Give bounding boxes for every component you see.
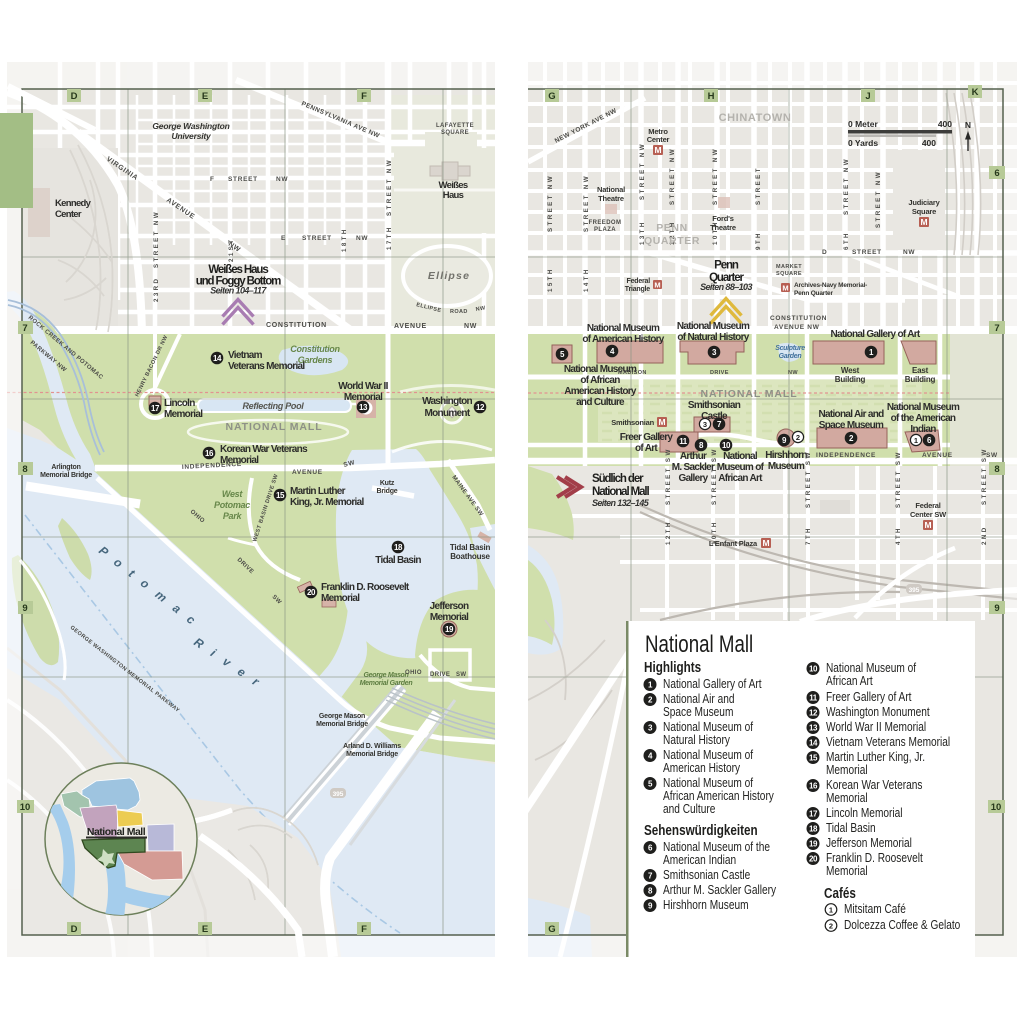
svg-text:Ellipse: Ellipse: [428, 270, 470, 282]
svg-text:Potomac: Potomac: [214, 500, 250, 510]
svg-text:World War II: World War II: [338, 381, 388, 392]
svg-text:George Mason: George Mason: [319, 713, 365, 720]
svg-text:18: 18: [394, 543, 403, 552]
svg-text:of Art: of Art: [635, 443, 658, 454]
svg-text:DRIVE: DRIVE: [430, 672, 450, 678]
svg-text:STREET NW: STREET NW: [386, 158, 393, 216]
svg-text:STREET SW: STREET SW: [981, 447, 988, 505]
svg-text:H: H: [708, 91, 715, 102]
svg-text:F: F: [361, 91, 367, 102]
svg-text:E: E: [281, 235, 286, 242]
svg-text:L'Enfant Plaza: L'Enfant Plaza: [709, 539, 758, 548]
svg-text:Memorial Bridge: Memorial Bridge: [40, 472, 92, 479]
svg-text:STREET: STREET: [228, 176, 258, 183]
svg-text:F: F: [361, 924, 367, 935]
svg-text:Bridge: Bridge: [377, 488, 398, 495]
svg-text:3: 3: [703, 420, 707, 429]
svg-text:National Gallery of Art: National Gallery of Art: [663, 677, 762, 691]
svg-text:12: 12: [476, 403, 485, 412]
svg-text:11: 11: [679, 437, 688, 446]
svg-text:400: 400: [938, 119, 952, 129]
svg-text:6TH: 6TH: [843, 231, 850, 250]
svg-text:National Mall: National Mall: [87, 826, 146, 838]
svg-text:of American History: of American History: [582, 334, 664, 345]
svg-text:Federal: Federal: [627, 278, 651, 285]
svg-text:Archives-Navy Memorial-: Archives-Navy Memorial-: [794, 282, 867, 289]
svg-text:CHINATOWN: CHINATOWN: [719, 112, 792, 124]
svg-text:Memorial: Memorial: [826, 763, 868, 777]
svg-text:East: East: [912, 366, 929, 375]
svg-text:INDEPENDENCE: INDEPENDENCE: [816, 452, 876, 459]
svg-text:7TH: 7TH: [805, 526, 812, 545]
svg-text:George Mason: George Mason: [363, 672, 408, 679]
svg-text:AVENUE NW: AVENUE NW: [774, 324, 820, 331]
svg-text:Monument: Monument: [425, 408, 471, 419]
svg-text:G: G: [548, 91, 555, 102]
svg-text:QUARTER: QUARTER: [644, 235, 700, 247]
svg-text:10: 10: [20, 802, 31, 813]
svg-text:17TH: 17TH: [386, 225, 393, 250]
svg-text:American Indian: American Indian: [663, 853, 736, 867]
svg-text:M: M: [924, 520, 931, 530]
svg-text:Sculpture: Sculpture: [775, 345, 805, 352]
svg-text:National Mall: National Mall: [645, 631, 753, 658]
svg-text:Seiten 104–117: Seiten 104–117: [210, 286, 267, 296]
svg-text:Theatre: Theatre: [710, 223, 736, 232]
svg-text:Center SW: Center SW: [910, 510, 947, 519]
svg-text:Südlich der: Südlich der: [592, 473, 644, 485]
svg-text:SQUARE: SQUARE: [776, 271, 802, 277]
svg-text:STREET SW: STREET SW: [711, 447, 718, 505]
svg-text:Penn: Penn: [714, 260, 739, 272]
svg-text:8: 8: [22, 464, 27, 475]
svg-text:8: 8: [994, 464, 999, 475]
svg-text:F: F: [210, 176, 215, 183]
svg-text:Park: Park: [223, 511, 243, 521]
svg-text:Hirshhorn Museum: Hirshhorn Museum: [663, 898, 749, 912]
svg-text:Ford's: Ford's: [712, 214, 733, 223]
svg-text:Dolcezza Coffee & Gelato: Dolcezza Coffee & Gelato: [844, 918, 960, 932]
svg-text:NW: NW: [788, 370, 798, 376]
svg-text:Kennedy: Kennedy: [55, 198, 92, 209]
svg-text:MARKET: MARKET: [776, 264, 802, 270]
svg-text:STREET NW: STREET NW: [639, 142, 646, 200]
svg-text:Korean War Veterans: Korean War Veterans: [220, 444, 308, 455]
svg-text:Weißes Haus: Weißes Haus: [208, 264, 268, 276]
svg-text:Mitsitam Café: Mitsitam Café: [844, 902, 906, 916]
svg-text:STREET SW: STREET SW: [665, 447, 672, 505]
svg-text:Hirshhorn: Hirshhorn: [765, 450, 807, 461]
svg-text:19: 19: [809, 840, 818, 849]
svg-text:STREET: STREET: [755, 166, 762, 205]
svg-text:18: 18: [809, 825, 818, 834]
svg-text:J: J: [865, 91, 870, 102]
svg-text:NATIONAL MALL: NATIONAL MALL: [700, 388, 797, 400]
svg-text:ROAD: ROAD: [450, 309, 468, 315]
svg-text:15: 15: [809, 754, 818, 763]
svg-text:Tidal Basin: Tidal Basin: [375, 555, 421, 566]
svg-text:AVENUE: AVENUE: [292, 469, 323, 476]
svg-text:Kutz: Kutz: [380, 480, 395, 487]
svg-text:National Museum: National Museum: [677, 321, 750, 332]
svg-text:17: 17: [809, 810, 818, 819]
svg-text:M: M: [920, 217, 927, 227]
svg-text:1: 1: [914, 436, 918, 445]
svg-text:Smithsonian Castle: Smithsonian Castle: [663, 868, 750, 882]
svg-text:10: 10: [722, 441, 731, 450]
svg-text:15: 15: [276, 491, 285, 500]
svg-text:STREET NW: STREET NW: [669, 147, 676, 205]
svg-text:Building: Building: [835, 375, 866, 384]
svg-text:STREET NW: STREET NW: [712, 147, 719, 205]
svg-text:Museum of: Museum of: [717, 462, 765, 473]
svg-text:George Washington: George Washington: [152, 121, 229, 131]
svg-text:395: 395: [333, 791, 344, 798]
svg-text:Constitution: Constitution: [290, 344, 340, 354]
svg-text:STREET NW: STREET NW: [153, 210, 160, 268]
svg-text:of African: of African: [580, 375, 620, 386]
svg-text:University: University: [171, 131, 212, 141]
svg-text:Arthur M. Sackler Gallery: Arthur M. Sackler Gallery: [663, 883, 776, 897]
svg-text:National Museum: National Museum: [587, 323, 660, 334]
svg-text:21ST: 21ST: [228, 238, 235, 262]
svg-text:Indian: Indian: [910, 424, 936, 435]
svg-text:400: 400: [922, 138, 936, 148]
svg-text:Memorial: Memorial: [826, 864, 868, 878]
svg-text:D: D: [71, 924, 78, 935]
svg-text:Lincoln: Lincoln: [164, 398, 195, 409]
svg-text:15TH: 15TH: [547, 267, 554, 292]
svg-text:D: D: [822, 249, 827, 256]
svg-text:Reflecting Pool: Reflecting Pool: [242, 401, 304, 411]
svg-text:Arthur: Arthur: [680, 451, 707, 462]
svg-text:National Museum: National Museum: [887, 402, 960, 413]
svg-text:7: 7: [22, 323, 27, 334]
svg-text:Museum: Museum: [768, 461, 805, 472]
svg-text:World War II Memorial: World War II Memorial: [826, 720, 926, 734]
svg-text:M: M: [782, 284, 788, 293]
svg-text:Space Museum: Space Museum: [663, 705, 733, 719]
svg-text:Seiten 132–145: Seiten 132–145: [592, 498, 650, 508]
svg-text:2: 2: [796, 433, 800, 442]
svg-text:D: D: [71, 91, 78, 102]
svg-text:14: 14: [213, 354, 222, 363]
svg-text:Memorial: Memorial: [826, 791, 868, 805]
svg-text:NATIONAL MALL: NATIONAL MALL: [225, 421, 322, 433]
svg-text:16: 16: [809, 782, 818, 791]
svg-text:NW: NW: [464, 323, 477, 330]
svg-text:Vietnam Veterans Memorial: Vietnam Veterans Memorial: [826, 735, 950, 749]
svg-text:Memorial Bridge: Memorial Bridge: [346, 751, 398, 758]
svg-text:Jefferson: Jefferson: [430, 601, 469, 612]
svg-text:Square: Square: [912, 207, 936, 216]
svg-text:Washington Monument: Washington Monument: [826, 705, 930, 719]
svg-text:0 Yards: 0 Yards: [848, 138, 878, 148]
svg-text:10: 10: [809, 665, 818, 674]
svg-text:FREEDOM: FREEDOM: [589, 220, 622, 226]
svg-text:Boathouse: Boathouse: [450, 552, 490, 561]
svg-text:Center: Center: [55, 209, 82, 220]
svg-text:14TH: 14TH: [583, 267, 590, 292]
svg-text:7: 7: [994, 323, 999, 334]
svg-text:NW: NW: [356, 235, 368, 242]
svg-text:Memorial: Memorial: [220, 455, 259, 466]
svg-text:M: M: [654, 145, 661, 155]
svg-text:N: N: [965, 120, 971, 130]
svg-text:West: West: [841, 366, 860, 375]
svg-text:Franklin D. Roosevelt: Franklin D. Roosevelt: [321, 582, 410, 593]
svg-text:Building: Building: [905, 375, 936, 384]
svg-text:STREET: STREET: [852, 249, 882, 256]
svg-text:13: 13: [359, 403, 368, 412]
svg-text:of the American: of the American: [891, 413, 956, 424]
svg-text:M: M: [654, 281, 660, 290]
svg-text:STREET: STREET: [302, 235, 332, 242]
svg-text:CONSTITUTION: CONSTITUTION: [266, 322, 327, 329]
svg-text:4TH: 4TH: [895, 526, 902, 545]
svg-text:16: 16: [205, 449, 214, 458]
svg-text:SQUARE: SQUARE: [441, 130, 469, 136]
svg-text:Judiciary: Judiciary: [908, 198, 940, 207]
svg-text:Arlington: Arlington: [51, 464, 80, 471]
svg-text:Federal: Federal: [915, 501, 940, 510]
svg-text:Garden: Garden: [779, 353, 802, 360]
svg-text:395: 395: [909, 587, 920, 594]
svg-text:Washington: Washington: [422, 396, 472, 407]
svg-text:Memorial: Memorial: [321, 593, 360, 604]
svg-text:National: National: [723, 451, 758, 462]
svg-text:STREET NW: STREET NW: [843, 157, 850, 215]
svg-text:20: 20: [307, 588, 316, 597]
svg-text:National Gallery of Art: National Gallery of Art: [830, 329, 920, 340]
svg-text:19: 19: [445, 625, 454, 634]
svg-text:Veterans Memorial: Veterans Memorial: [228, 361, 305, 372]
svg-text:Smithsonian: Smithsonian: [611, 418, 654, 427]
svg-text:Penn Quarter: Penn Quarter: [794, 290, 833, 297]
svg-text:NW: NW: [903, 249, 915, 256]
svg-text:9TH: 9TH: [755, 231, 762, 250]
svg-text:Lincoln Memorial: Lincoln Memorial: [826, 806, 903, 820]
svg-text:M: M: [658, 417, 665, 427]
svg-text:DRIVE: DRIVE: [710, 370, 729, 376]
svg-text:G: G: [548, 924, 555, 935]
svg-text:Center: Center: [647, 135, 670, 144]
svg-text:12: 12: [809, 709, 818, 718]
svg-text:13: 13: [809, 724, 818, 733]
svg-text:Highlights: Highlights: [644, 659, 701, 676]
svg-text:Haus: Haus: [443, 190, 464, 201]
svg-text:Memorial: Memorial: [430, 612, 469, 623]
svg-text:Tidal Basin: Tidal Basin: [826, 821, 876, 835]
svg-text:E: E: [202, 924, 208, 935]
svg-text:Memorial Bridge: Memorial Bridge: [316, 721, 368, 728]
svg-text:14: 14: [809, 739, 818, 748]
svg-text:CONSTITUTION: CONSTITUTION: [770, 315, 827, 322]
svg-text:Vietnam: Vietnam: [228, 350, 263, 361]
svg-text:23RD: 23RD: [153, 277, 160, 302]
svg-text:11: 11: [809, 694, 818, 703]
svg-text:Gallery: Gallery: [678, 473, 708, 484]
svg-text:African Art: African Art: [826, 674, 873, 688]
svg-text:10: 10: [991, 802, 1002, 813]
svg-text:American History: American History: [663, 761, 740, 775]
svg-text:Martin Luther: Martin Luther: [290, 486, 346, 497]
svg-text:of Natural History: of Natural History: [677, 332, 749, 343]
svg-text:PLAZA: PLAZA: [594, 227, 616, 233]
svg-text:Theatre: Theatre: [598, 194, 624, 203]
svg-text:Cafés: Cafés: [824, 885, 856, 902]
svg-text:9: 9: [994, 603, 999, 614]
svg-text:12TH: 12TH: [665, 520, 672, 545]
svg-text:and Culture: and Culture: [663, 802, 715, 816]
svg-text:STREET NW: STREET NW: [875, 170, 882, 228]
svg-text:18TH: 18TH: [341, 227, 348, 252]
svg-text:2ND: 2ND: [981, 525, 988, 545]
svg-text:LAFAYETTE: LAFAYETTE: [436, 123, 474, 129]
svg-text:Tidal Basin: Tidal Basin: [450, 543, 491, 552]
svg-text:Memorial Garden: Memorial Garden: [360, 680, 413, 687]
svg-text:Freer Gallery: Freer Gallery: [620, 432, 674, 443]
svg-text:American History: American History: [564, 386, 637, 397]
svg-text:20: 20: [809, 855, 818, 864]
svg-text:Freer Gallery of Art: Freer Gallery of Art: [826, 690, 912, 704]
svg-text:National: National: [597, 185, 625, 194]
svg-text:Sehenswürdigkeiten: Sehenswürdigkeiten: [644, 822, 758, 839]
svg-text:National Mall: National Mall: [592, 486, 650, 498]
svg-text:Memorial: Memorial: [164, 409, 203, 420]
svg-text:STREET SW: STREET SW: [895, 450, 902, 508]
svg-text:AVENUE: AVENUE: [922, 452, 953, 459]
svg-text:Natural History: Natural History: [663, 733, 730, 747]
svg-text:M. Sackler: M. Sackler: [672, 462, 715, 473]
svg-text:African Art: African Art: [718, 473, 763, 484]
svg-text:E: E: [202, 91, 208, 102]
svg-text:1: 1: [829, 906, 833, 915]
svg-text:Smithsonian: Smithsonian: [688, 400, 741, 411]
svg-text:National Air and: National Air and: [818, 409, 884, 420]
svg-text:0 Meter: 0 Meter: [848, 119, 878, 129]
svg-text:Triangle: Triangle: [625, 286, 651, 293]
svg-text:Seiten 88–103: Seiten 88–103: [700, 282, 752, 292]
svg-text:West: West: [222, 489, 243, 499]
svg-text:2: 2: [829, 922, 833, 931]
svg-text:K: K: [972, 87, 979, 98]
svg-text:King, Jr. Memorial: King, Jr. Memorial: [290, 497, 364, 508]
svg-text:Arland D. Williams: Arland D. Williams: [343, 743, 401, 750]
svg-text:Space Museum: Space Museum: [819, 420, 884, 431]
svg-text:STREET SW: STREET SW: [805, 450, 812, 508]
svg-text:and Culture: and Culture: [576, 397, 625, 408]
svg-text:AVENUE: AVENUE: [394, 323, 427, 330]
svg-text:MADISON: MADISON: [618, 370, 647, 376]
svg-text:Jefferson Memorial: Jefferson Memorial: [826, 836, 912, 850]
svg-text:OHIO: OHIO: [405, 670, 422, 676]
svg-text:NW: NW: [276, 176, 288, 183]
svg-text:STREET NW: STREET NW: [547, 174, 554, 232]
svg-text:M: M: [762, 538, 769, 548]
svg-text:PENN: PENN: [656, 222, 688, 234]
svg-text:17: 17: [151, 404, 160, 413]
svg-text:SW: SW: [456, 672, 466, 678]
svg-text:9: 9: [22, 603, 27, 614]
svg-text:6: 6: [994, 168, 999, 179]
